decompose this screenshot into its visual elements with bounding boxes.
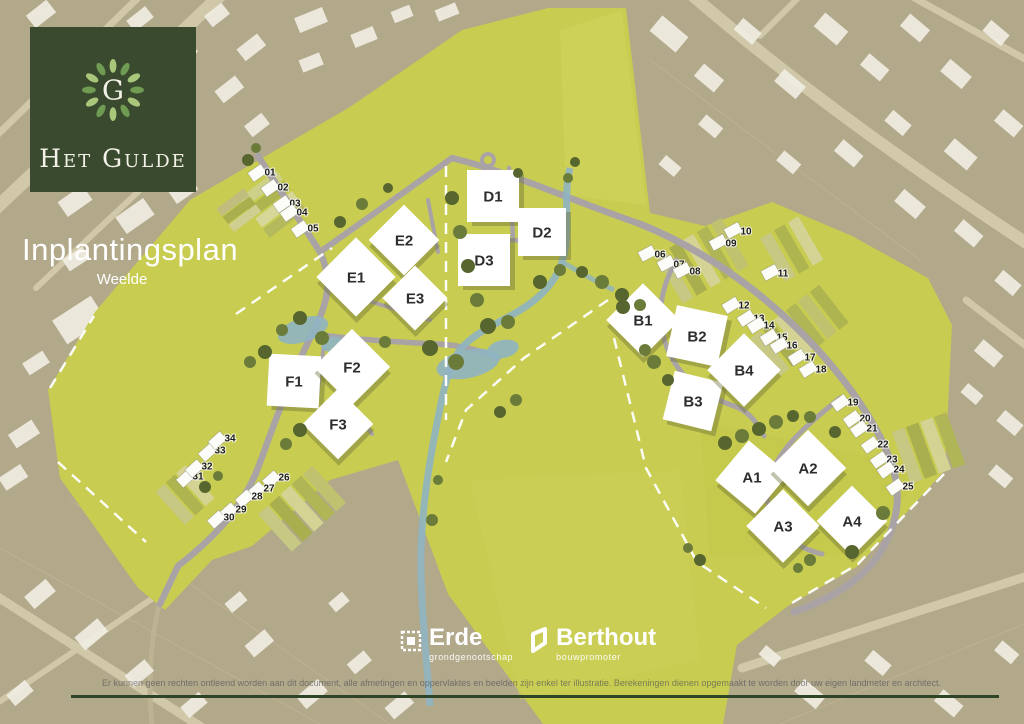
svg-text:D2: D2 [532,224,551,241]
svg-text:18: 18 [815,365,827,376]
svg-text:D1: D1 [483,188,502,205]
partner-berthout: Berthout bouwpromoter [529,626,656,662]
svg-text:A1: A1 [742,469,761,486]
svg-text:09: 09 [725,239,737,250]
svg-text:11: 11 [778,269,789,280]
svg-text:E2: E2 [395,232,413,249]
partner-erde: Erde grondgenootschap [400,626,513,662]
block-f1: F1 [267,354,326,413]
logo-initial: G [102,74,124,106]
erde-name: Erde [429,626,513,650]
svg-text:08: 08 [689,267,701,278]
svg-text:10: 10 [740,227,752,238]
disclaimer-text: Er kunnen geen rechten ontleend worden a… [102,678,992,688]
svg-text:01: 01 [264,168,276,179]
svg-text:E3: E3 [406,290,424,307]
svg-text:B4: B4 [734,362,754,379]
svg-text:F3: F3 [329,416,347,433]
logo: G Het Gulde [30,27,196,192]
page-title: Inplantingsplan [22,232,222,268]
svg-text:34: 34 [224,434,236,445]
svg-text:B1: B1 [633,312,652,329]
svg-text:B3: B3 [683,393,702,410]
svg-text:05: 05 [307,224,319,235]
erde-tagline: grondgenootschap [429,652,513,662]
svg-text:22: 22 [877,440,889,451]
berthout-tagline: bouwpromoter [556,652,656,662]
svg-text:E1: E1 [347,269,365,286]
svg-text:02: 02 [277,183,289,194]
svg-text:26: 26 [278,473,290,484]
logo-wreath-icon: G [70,47,156,133]
brand-name: Het Gulde [30,144,196,173]
berthout-name: Berthout [556,626,656,650]
svg-text:32: 32 [201,462,213,473]
block-d1: D1 [467,170,524,226]
page-subtitle: Weelde [22,271,222,288]
erde-icon [400,630,422,652]
site-plan-page: A1A2A3A4B1B2B3B4D1D2D3E1E2E3F1F2F3 [0,0,1024,724]
svg-text:24: 24 [893,465,905,476]
svg-text:A4: A4 [842,513,862,530]
partner-logos: Erde grondgenootschap Berthout bouwpromo… [400,626,656,662]
svg-text:A3: A3 [773,518,792,535]
svg-text:29: 29 [235,505,247,516]
svg-text:12: 12 [738,301,750,312]
svg-text:B2: B2 [687,328,706,345]
svg-text:A2: A2 [798,460,817,477]
svg-text:27: 27 [263,484,275,495]
svg-text:21: 21 [866,424,878,435]
footer-rule [71,695,999,698]
svg-text:16: 16 [786,341,798,352]
svg-text:25: 25 [902,482,914,493]
svg-text:F1: F1 [285,373,303,390]
svg-text:F2: F2 [343,359,361,376]
svg-text:D3: D3 [474,252,493,269]
berthout-icon [529,626,549,654]
svg-text:04: 04 [296,208,308,219]
block-d2: D2 [518,208,571,260]
svg-text:30: 30 [223,513,235,524]
svg-text:28: 28 [251,492,263,503]
svg-text:19: 19 [847,398,859,409]
plan-title-block: Inplantingsplan Weelde [22,232,222,288]
